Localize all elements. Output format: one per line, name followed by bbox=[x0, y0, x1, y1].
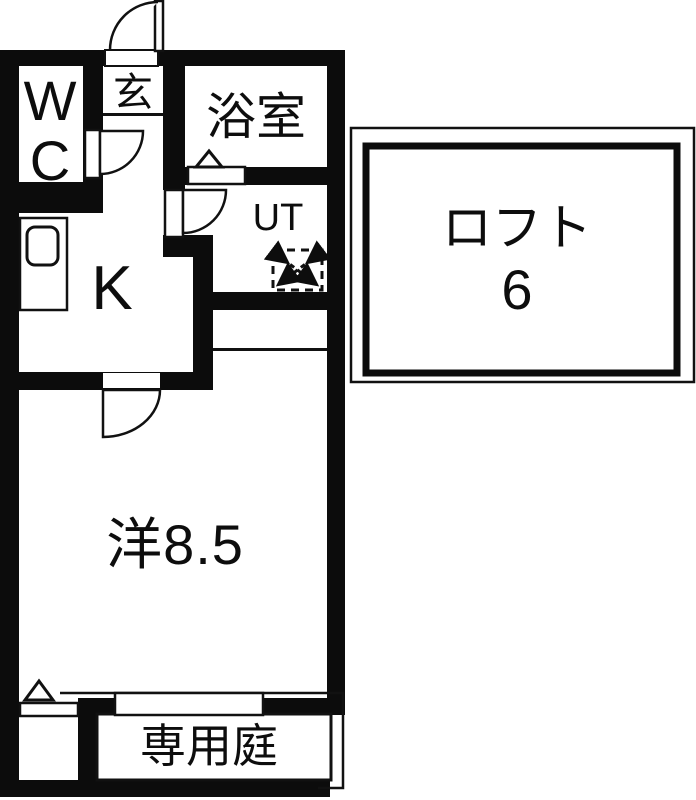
wall-bottom bbox=[0, 780, 330, 797]
room-label-bathroom: 浴室 bbox=[206, 89, 306, 145]
room-label-loft: ロフト bbox=[442, 200, 592, 256]
wall-ut-bottom bbox=[213, 292, 327, 310]
wall-garden-left-strip bbox=[78, 715, 97, 780]
washing-machine-icon bbox=[273, 250, 322, 290]
room-label-garden: 専用庭 bbox=[140, 720, 278, 772]
window-to-garden bbox=[115, 693, 263, 715]
ut-door-leaf bbox=[165, 190, 183, 237]
room-door-opening bbox=[103, 373, 160, 388]
room-label-loft-size: 6 bbox=[501, 258, 532, 321]
entrance-door-leaf bbox=[155, 1, 163, 51]
wall-ut-stub bbox=[163, 235, 213, 257]
room-label-utility: UT bbox=[253, 197, 304, 239]
wall-left bbox=[0, 50, 19, 797]
room-label-wc-line1: W bbox=[24, 69, 77, 132]
wall-right bbox=[327, 50, 345, 715]
floorplan-drawing: W C 玄 浴室 UT K ロフト 6 洋8.5 専用庭 bbox=[0, 0, 696, 800]
room-label-entrance: 玄 bbox=[113, 71, 153, 115]
kitchen-sink-icon bbox=[27, 227, 58, 265]
wc-door-leaf bbox=[85, 130, 100, 178]
wall-kitchen-right bbox=[193, 257, 213, 390]
room-label-wc-line2: C bbox=[30, 129, 70, 192]
entrance-door-opening bbox=[105, 50, 158, 66]
floorplan-canvas: W C 玄 浴室 UT K ロフト 6 洋8.5 専用庭 bbox=[0, 0, 696, 800]
wall-bottom-right-seg bbox=[263, 698, 330, 715]
corridor-floor-line bbox=[213, 348, 327, 351]
terrace-step bbox=[20, 703, 78, 716]
room-label-western-room: 洋8.5 bbox=[106, 513, 244, 576]
room-label-kitchen: K bbox=[91, 254, 132, 323]
bathroom-door-threshold bbox=[188, 167, 245, 184]
wall-bottom-left-seg bbox=[78, 698, 115, 715]
